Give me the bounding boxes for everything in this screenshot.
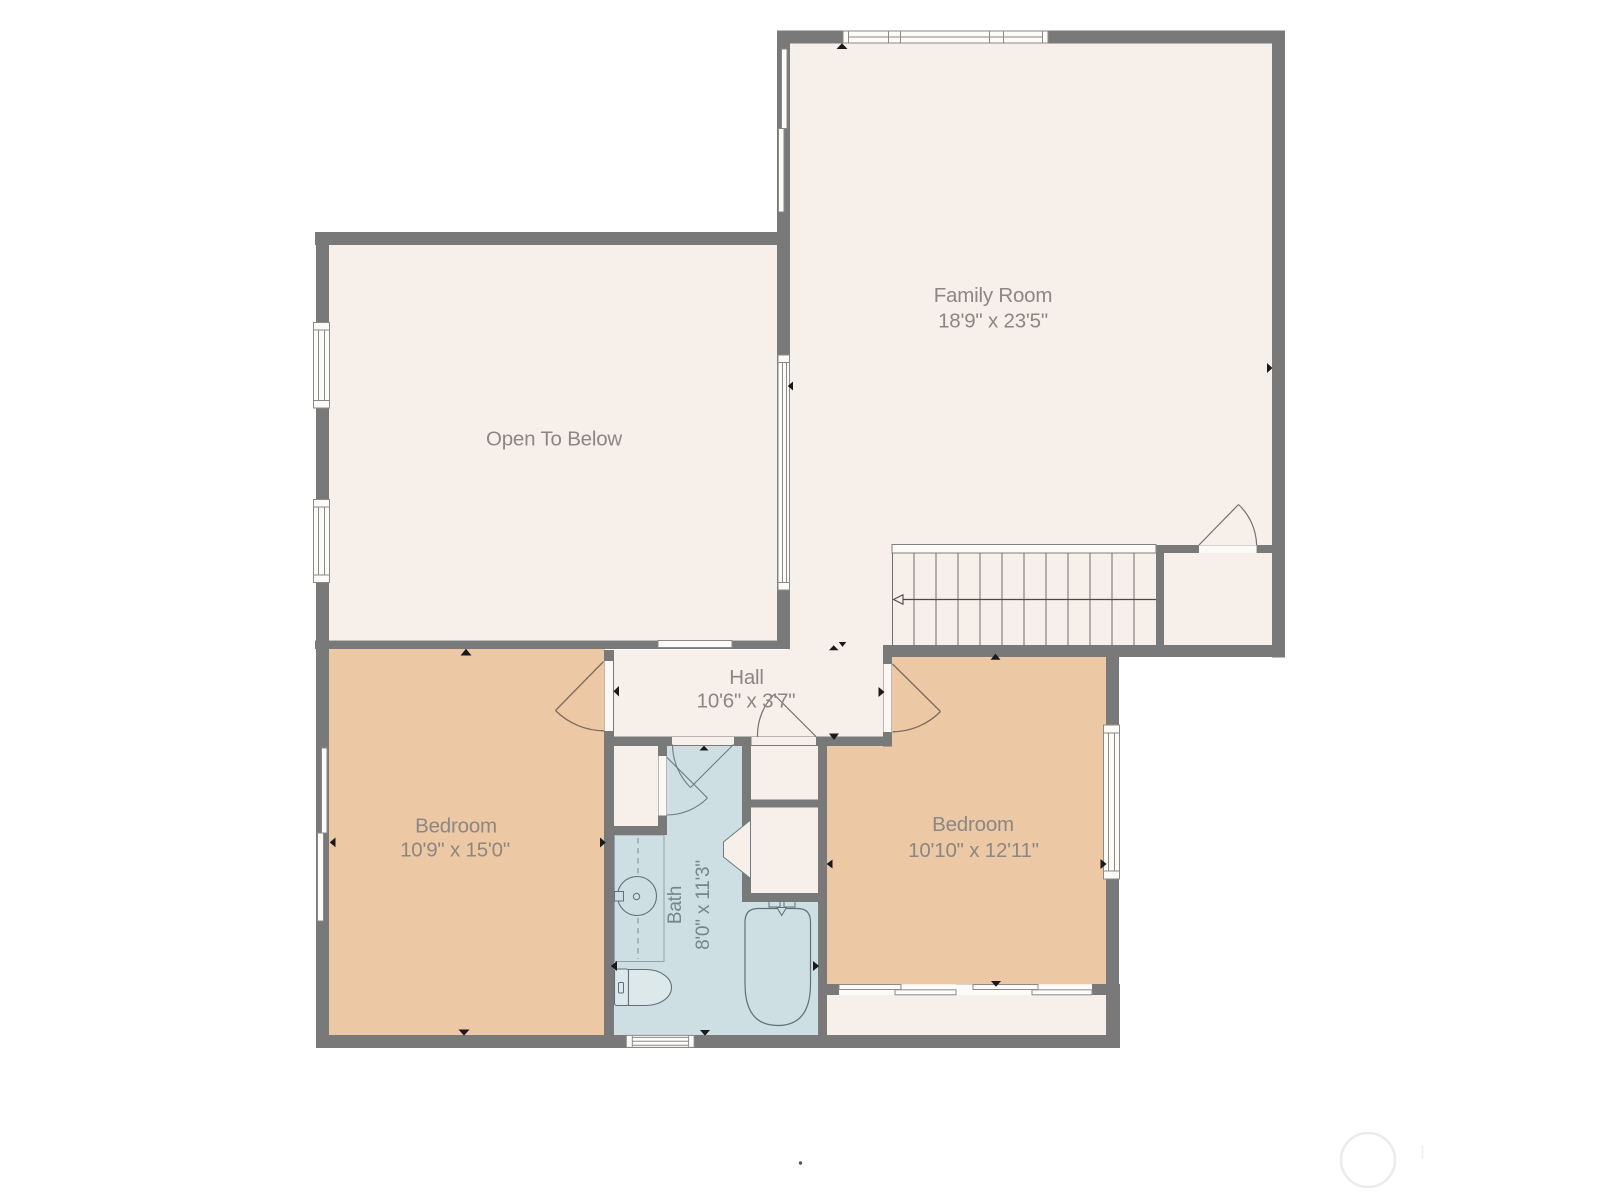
svg-text:Family Room: Family Room bbox=[934, 284, 1053, 307]
svg-text:Bedroom: Bedroom bbox=[932, 813, 1014, 836]
svg-text:10'10" x 12'11": 10'10" x 12'11" bbox=[908, 839, 1039, 862]
svg-text:18'9" x 23'5": 18'9" x 23'5" bbox=[938, 310, 1048, 333]
svg-text:Bath: Bath bbox=[665, 886, 686, 924]
svg-text:10'9" x 15'0": 10'9" x 15'0" bbox=[400, 839, 510, 862]
svg-text:Open To Below: Open To Below bbox=[486, 428, 622, 451]
svg-text:Bedroom: Bedroom bbox=[415, 815, 497, 838]
svg-text:Hall: Hall bbox=[729, 666, 764, 689]
svg-text:10'6" x 3'7": 10'6" x 3'7" bbox=[697, 690, 796, 713]
svg-text:8'0" x 11'3": 8'0" x 11'3" bbox=[693, 860, 714, 950]
